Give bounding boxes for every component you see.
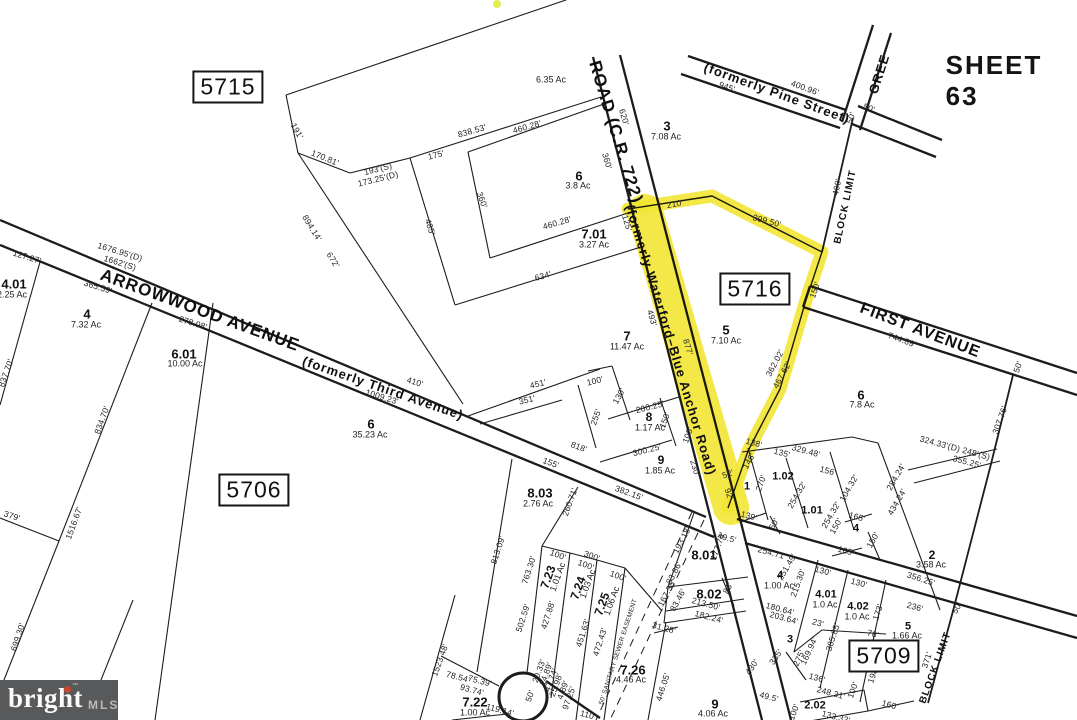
parcel-lot-number: 4 — [853, 524, 859, 535]
parcel-lot-number: 3 — [787, 635, 793, 646]
parcel-boundary-line — [852, 437, 878, 443]
parcel-acreage: 4.46 Ac — [616, 676, 646, 685]
parcel-acreage: 7.10 Ac — [711, 337, 741, 346]
parcel-acreage: 35.23 Ac — [352, 431, 387, 440]
parcel-acreage: 3.27 Ac — [579, 241, 609, 250]
brightmls-logo-dot-icon — [64, 686, 71, 693]
parcel-boundary-line — [0, 541, 59, 690]
parcel-lot-number: 8.02 — [696, 588, 721, 601]
parcel-acreage: 2.76 Ac — [523, 500, 553, 509]
block-number-box: 5709 — [848, 640, 919, 673]
parcel-lot-number: 1.02 — [772, 472, 793, 483]
parcel-acreage: 1.00 Ac — [764, 582, 794, 591]
parcel-boundary-line — [668, 577, 748, 587]
parcel-acreage: 1.17 Ac — [635, 424, 665, 433]
parcel-acreage: 4.06 Ac — [698, 710, 728, 719]
parcel-lot-number: 8 — [646, 411, 653, 423]
map-marker-dot — [493, 0, 501, 8]
sheet-title: SHEET 63 — [946, 50, 1043, 112]
parcel-acreage: 7.32 Ac — [71, 321, 101, 330]
parcel-acreage: 1.85 Ac — [645, 467, 675, 476]
road-edge-line — [852, 124, 936, 157]
dimension-label: 110' — [579, 709, 597, 720]
parcel-lot-number: 2.02 — [804, 701, 825, 712]
parcel-acreage: 3.8 Ac — [565, 182, 590, 191]
parcel-acreage: 7.08 Ac — [651, 133, 681, 142]
block-number-box: 5706 — [218, 474, 289, 507]
parcel-boundary-line — [286, 0, 566, 95]
parcel-acreage: 10.00 Ac — [167, 360, 202, 369]
tax-map: 191'170.81'193'(S)173.25'(D)838.53'175'4… — [0, 0, 1077, 720]
parcel-boundary-line — [864, 690, 868, 711]
parcel-acreage: 11.47 Ac — [610, 343, 644, 352]
parcel-lot-number: 1 — [744, 482, 750, 493]
parcel-lot-number: 8.01 — [691, 549, 716, 562]
brightmls-logo: bright ™ MLS — [0, 680, 118, 720]
parcel-lot-number: 9 — [658, 454, 665, 466]
parcel-boundary-line — [597, 560, 625, 568]
block-number-box: 5715 — [192, 71, 263, 104]
brightmls-trademark: ™ — [72, 683, 78, 689]
parcel-acreage: 1.0 Ac — [812, 601, 837, 610]
parcel-boundary-line — [0, 518, 59, 541]
parcel-acreage: 2.25 Ac — [0, 291, 27, 300]
parcel-boundary-line — [588, 366, 612, 371]
dimension-label: 92' — [723, 487, 735, 501]
road-edge-line — [803, 307, 1077, 395]
parcel-lot-number: 1.01 — [801, 506, 822, 517]
parcel-acreage: 6.35 Ac — [536, 76, 566, 85]
parcel-boundary-line — [477, 459, 512, 672]
block-number-box: 5716 — [719, 273, 790, 306]
parcel-acreage: 7.8 Ac — [849, 401, 874, 410]
parcel-acreage: 1.00 Ac — [460, 709, 490, 718]
parcel-acreage: 1.0 Ac — [844, 613, 869, 622]
parcel-acreage: 3.58 Ac — [916, 561, 946, 570]
brightmls-mls-text: MLS — [88, 698, 119, 712]
